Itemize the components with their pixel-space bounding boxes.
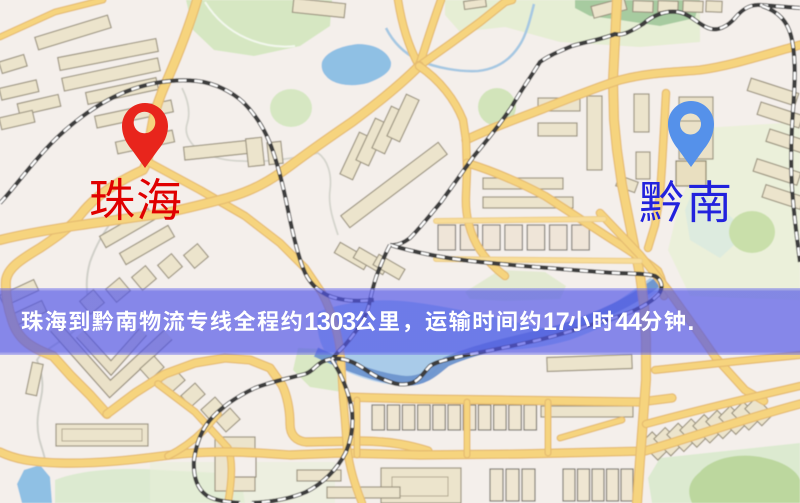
svg-text:.: .	[687, 308, 694, 336]
svg-text:1303: 1303	[304, 308, 355, 336]
svg-text:44: 44	[615, 308, 642, 336]
svg-text:17: 17	[543, 308, 569, 336]
